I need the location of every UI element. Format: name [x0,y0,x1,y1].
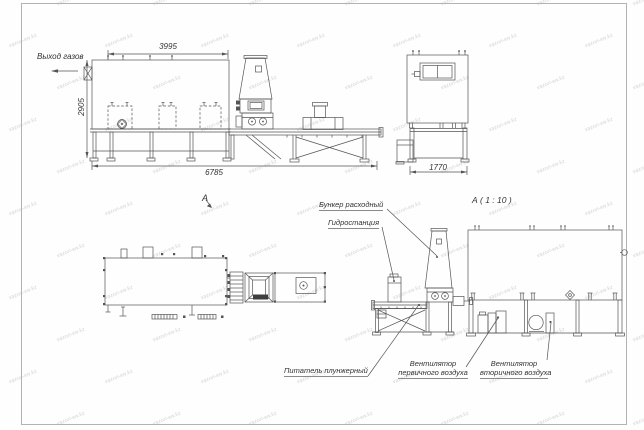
valve-icon [118,120,127,129]
dim-3995-text: 3995 [152,42,184,51]
hopper-callout: Бункер расходный [319,200,383,211]
gas-outlet-stub [84,67,92,80]
fan-secondary-callout-line1: Вентилятор [487,359,541,368]
section-feeder [427,288,473,306]
view-plan [103,200,326,319]
view-side-elevation [51,50,383,170]
gas-flow-arrow-icon [51,69,78,72]
roof-studs [107,55,173,60]
support-frame [90,129,231,161]
dim-2905-text: 2905 [77,91,87,123]
discharge-stack [303,103,343,130]
dim-6785 [92,161,377,170]
braced-stand [231,135,369,162]
feeder-callout: Питатель плунжерный [284,366,368,377]
hydrostation-box [388,274,401,302]
leader-lines [368,209,551,376]
end-mount-studs [410,123,466,128]
dim-1770-text: 1770 [422,163,454,172]
end-side-box [396,140,413,164]
view-end [396,50,469,175]
inspection-hatch [412,63,456,80]
section-bottom-studs [471,293,618,300]
section-underframe [467,300,625,336]
plunger-conveyor [372,301,428,319]
conveyor-beam [229,128,383,138]
hopper-tower [239,56,272,100]
plan-view-marker: А [202,193,208,203]
plan-hopper [245,273,273,302]
module-studs [111,103,218,107]
hydrostation-callout: Гидростанция [328,218,379,229]
section-hopper [425,229,452,289]
feeder-housing [236,113,273,129]
plan-hatch-strips [152,315,224,320]
view-section [368,209,627,376]
plan-fan-casing [274,272,326,303]
plan-ribbed-joint [227,272,243,303]
dim-3995 [108,50,228,59]
end-base-frame [408,128,469,162]
firebox [236,99,271,113]
fan-primary-callout-line2: первичного воздуха [398,368,468,379]
plan-bolts [103,255,227,305]
section-view-title: А ( 1 : 10 ) [472,195,512,205]
plan-anchors [106,305,196,316]
gas-outlet-label: Выход газов [37,52,84,61]
drawing-sheet: vazon-wv.kzvazon-wv.kzvazon-wv.kzvazon-w… [0,0,644,430]
dim-6785-text: 6785 [198,168,230,177]
primary-air-fan [478,311,506,333]
section-roof-studs [474,225,614,230]
fan-secondary-callout-line2: вторичного воздуха [480,368,548,379]
fan-primary-callout-line1: Вентилятор [406,359,460,368]
valve-icon-section [566,291,575,300]
end-roof-studs [412,50,466,55]
